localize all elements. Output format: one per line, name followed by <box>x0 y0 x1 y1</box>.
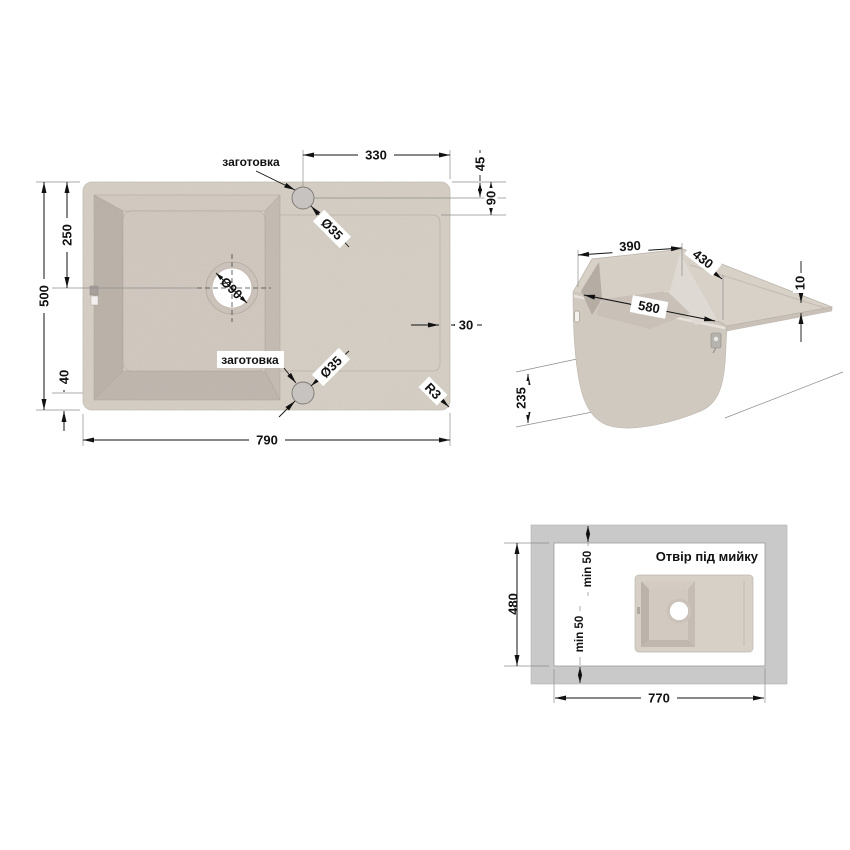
height-label: 500 <box>37 285 52 307</box>
technical-drawing-sink: Ø90 заготовка Ø35 заготовка Ø35 <box>0 0 850 850</box>
tap-hole-top <box>292 187 314 209</box>
drawing-canvas: Ø90 заготовка Ø35 заготовка Ø35 <box>0 0 850 850</box>
iso-view: 390 430 580 10 <box>514 237 844 428</box>
cutout-width-label: 770 <box>648 691 670 706</box>
bowl-width-label: 390 <box>619 238 642 254</box>
drain-center-label: 250 <box>60 224 75 246</box>
knockout-bottom-label: заготовка <box>221 353 279 367</box>
bottom-offset-label: 40 <box>57 370 72 384</box>
dim-width: 790 <box>83 413 450 448</box>
overflow-slot-3d <box>575 311 580 322</box>
width-label: 790 <box>256 433 278 448</box>
mini-sink <box>635 575 753 652</box>
rim-width-label: 90 <box>484 191 499 205</box>
dim-bowl-depth: 235 <box>514 374 529 423</box>
mini-overflow-mark <box>637 607 640 614</box>
dim-bottom-offset: 40 <box>52 364 83 431</box>
overflow-mark <box>90 286 98 295</box>
cutout-view: Отвір під мийку 480 <box>504 525 787 706</box>
counter-plane-line <box>725 372 843 418</box>
tap-to-edge-label: 330 <box>365 148 387 163</box>
tap-hole-bottom <box>292 382 314 404</box>
top-view: Ø90 заготовка Ø35 заготовка Ø35 <box>36 147 506 448</box>
granite-texture <box>83 182 450 410</box>
edge-width-label: 30 <box>459 318 473 333</box>
overflow-slot <box>91 296 98 305</box>
mini-drain-hole <box>670 602 689 621</box>
margin-bottom-label: min 50 <box>574 616 586 652</box>
dim-drain-center: 250 <box>59 182 75 288</box>
bowl-depth-label: 235 <box>514 387 529 409</box>
margin-top-label: min 50 <box>582 551 594 587</box>
dim-rim-width: 90 <box>484 182 499 215</box>
knockout-top-label: заготовка <box>222 155 280 169</box>
cutout-title: Отвір під мийку <box>656 549 759 564</box>
dim-tap-to-edge: 330 <box>303 147 450 186</box>
depth-ext-top <box>516 359 577 372</box>
cutout-height-label: 480 <box>506 593 521 615</box>
board-thickness-label: 10 <box>793 276 808 290</box>
tap-inset-label: 45 <box>473 157 488 171</box>
